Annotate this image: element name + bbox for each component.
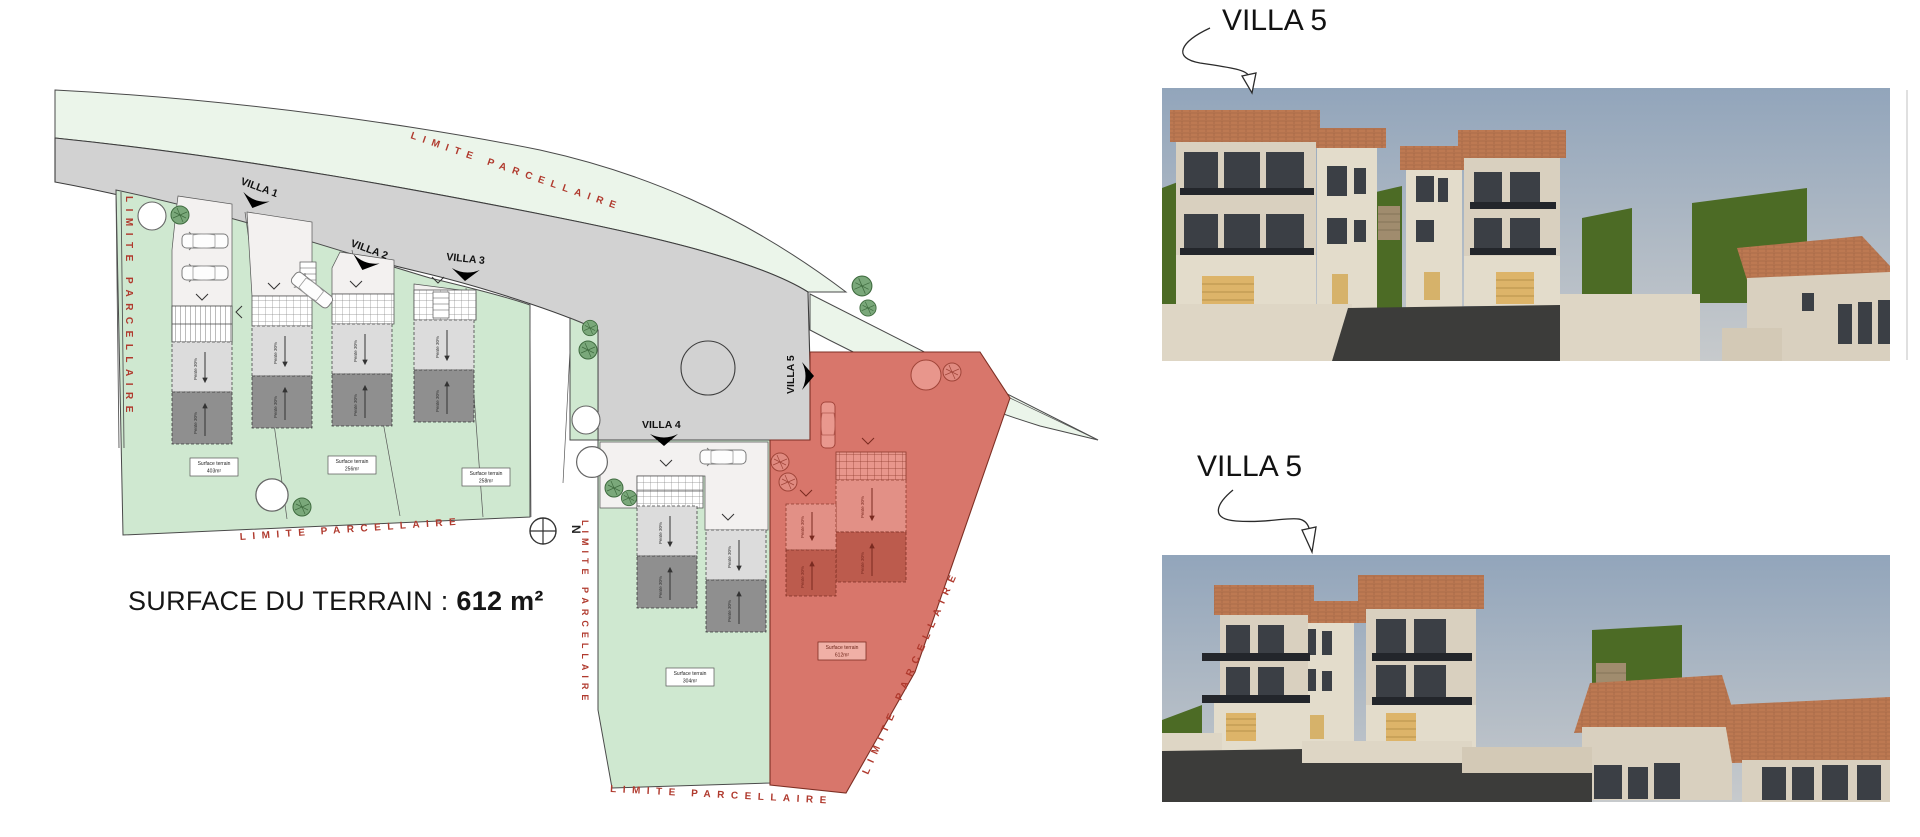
- annotation-overlay: [0, 0, 1920, 837]
- surface-total-value: 612 m²: [456, 586, 543, 616]
- page: Pente 30% Pente 30%: [0, 0, 1920, 837]
- render-1-title: VILLA 5: [1222, 4, 1327, 38]
- annotation-arrow-icon: [1218, 490, 1316, 552]
- render-2-title: VILLA 5: [1197, 450, 1302, 484]
- surface-total-label: SURFACE DU TERRAIN :: [128, 586, 449, 616]
- surface-total-text: SURFACE DU TERRAIN : 612 m²: [128, 586, 544, 617]
